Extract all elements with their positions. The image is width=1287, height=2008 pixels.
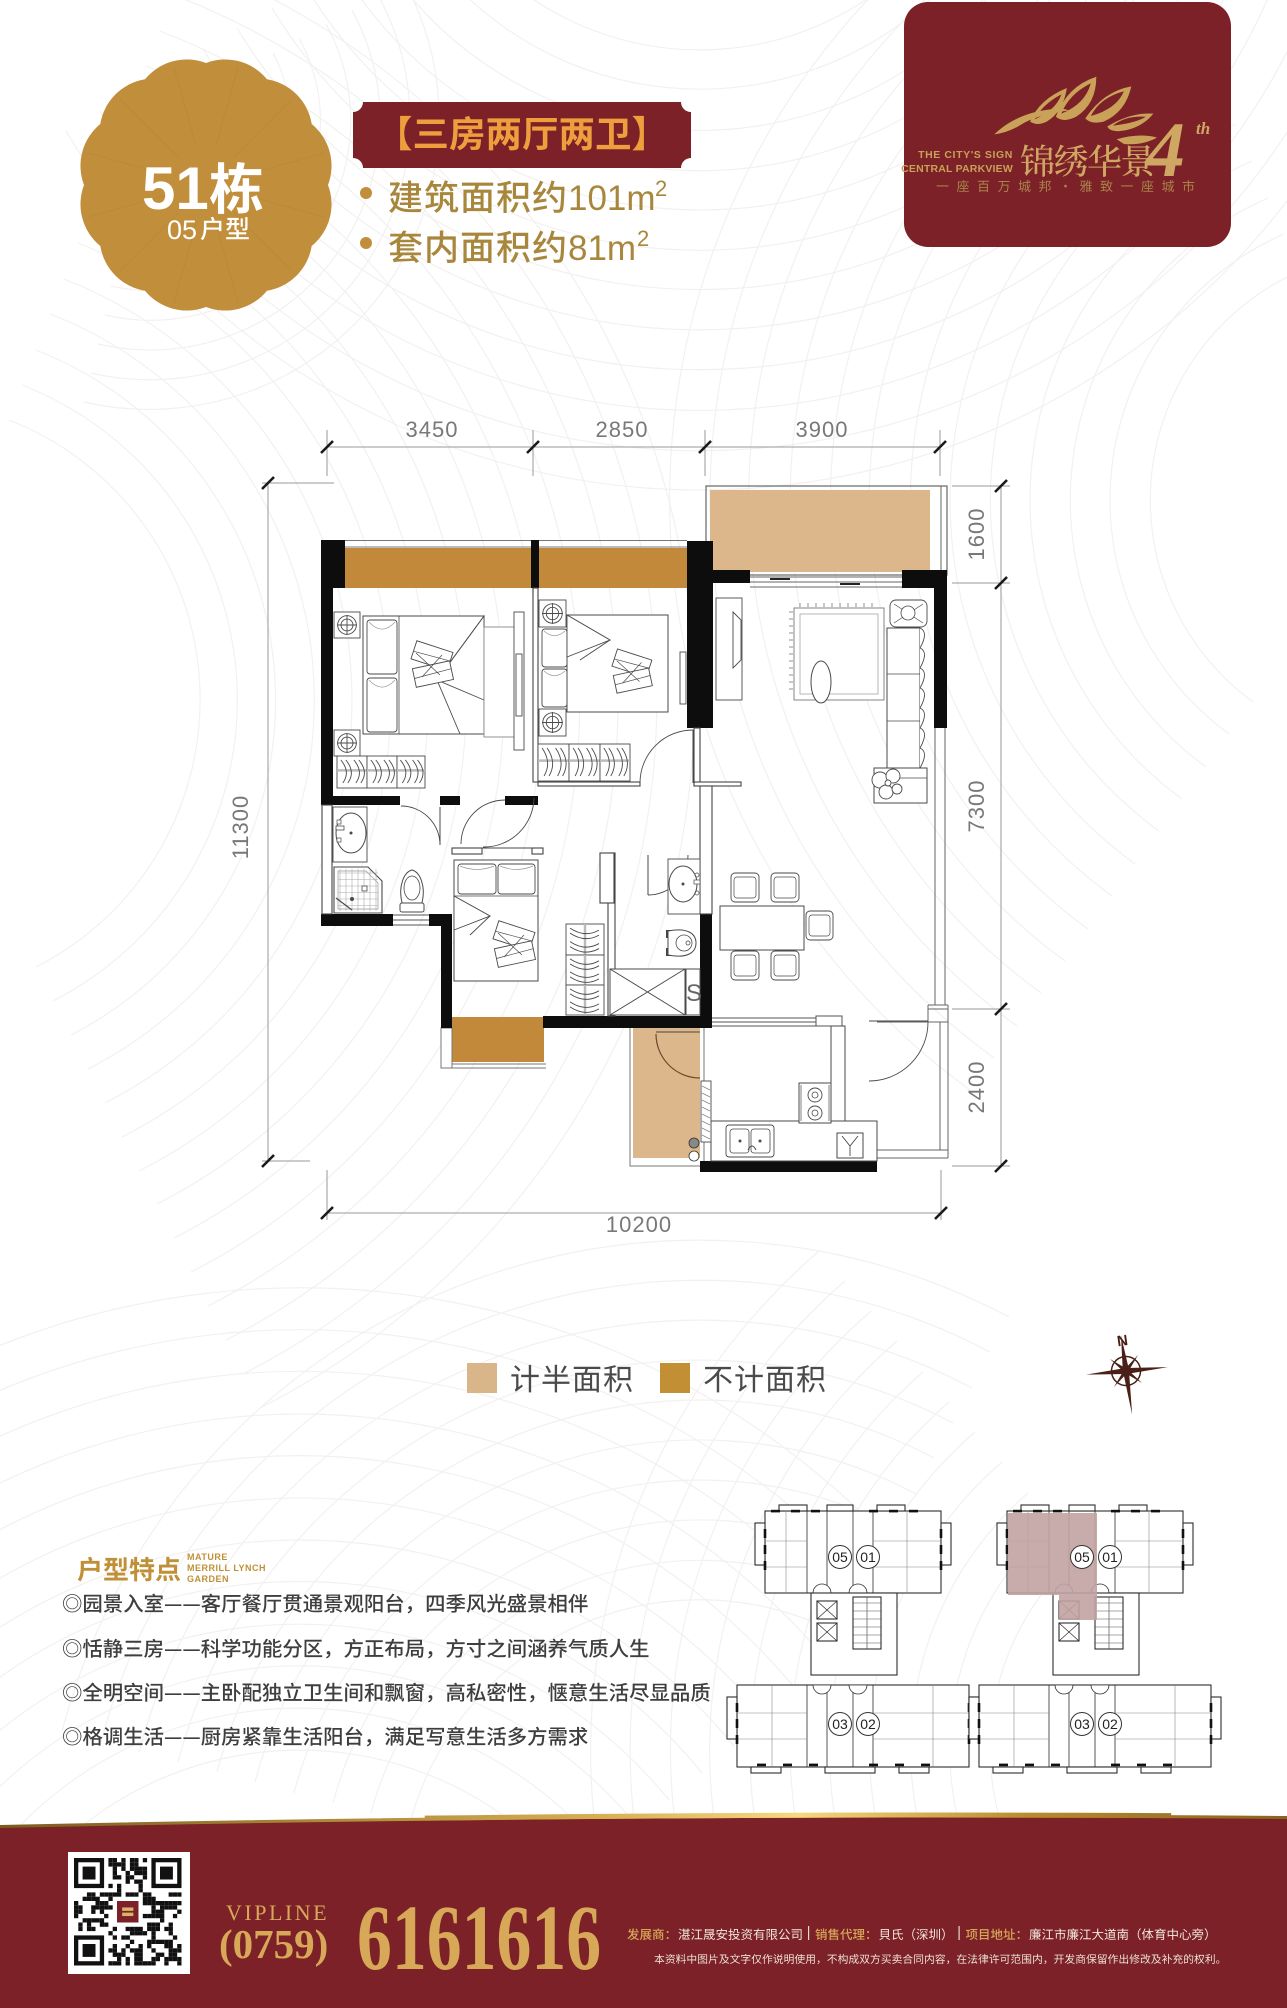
svg-text:02: 02 — [860, 1716, 876, 1732]
svg-text:2850: 2850 — [596, 417, 649, 442]
svg-text:th: th — [1196, 119, 1210, 138]
svg-text:01: 01 — [860, 1549, 876, 1565]
svg-text:03: 03 — [832, 1716, 848, 1732]
svg-text:01: 01 — [1102, 1549, 1118, 1565]
svg-text:(0759): (0759) — [219, 1921, 328, 1967]
svg-text:1600: 1600 — [964, 508, 989, 561]
svg-text:2400: 2400 — [964, 1061, 989, 1114]
svg-text:05: 05 — [167, 215, 197, 245]
svg-text:05: 05 — [1074, 1549, 1090, 1565]
svg-text:10200: 10200 — [606, 1212, 672, 1237]
svg-text:6161616: 6161616 — [357, 1886, 601, 1989]
svg-text:3450: 3450 — [406, 417, 459, 442]
svg-text:101m: 101m — [568, 179, 656, 218]
svg-text:51: 51 — [142, 155, 209, 222]
svg-text:CENTRAL PARKVIEW: CENTRAL PARKVIEW — [901, 163, 1013, 175]
svg-text:MERRILL LYNCH: MERRILL LYNCH — [187, 1563, 266, 1573]
svg-text:4: 4 — [1144, 106, 1185, 193]
svg-text:3900: 3900 — [796, 417, 849, 442]
svg-text:81m: 81m — [568, 229, 636, 268]
svg-text:02: 02 — [1102, 1716, 1118, 1732]
svg-text:2: 2 — [637, 226, 649, 251]
svg-text:05: 05 — [832, 1549, 848, 1565]
svg-text:MATURE: MATURE — [187, 1552, 228, 1562]
svg-text:GARDEN: GARDEN — [187, 1574, 229, 1584]
svg-text:THE CITY'S SIGN: THE CITY'S SIGN — [918, 149, 1013, 161]
svg-text:03: 03 — [1074, 1716, 1090, 1732]
svg-text:2: 2 — [655, 176, 667, 201]
svg-text:S: S — [686, 980, 702, 1007]
svg-text:11300: 11300 — [228, 795, 253, 860]
svg-text:7300: 7300 — [964, 780, 989, 833]
